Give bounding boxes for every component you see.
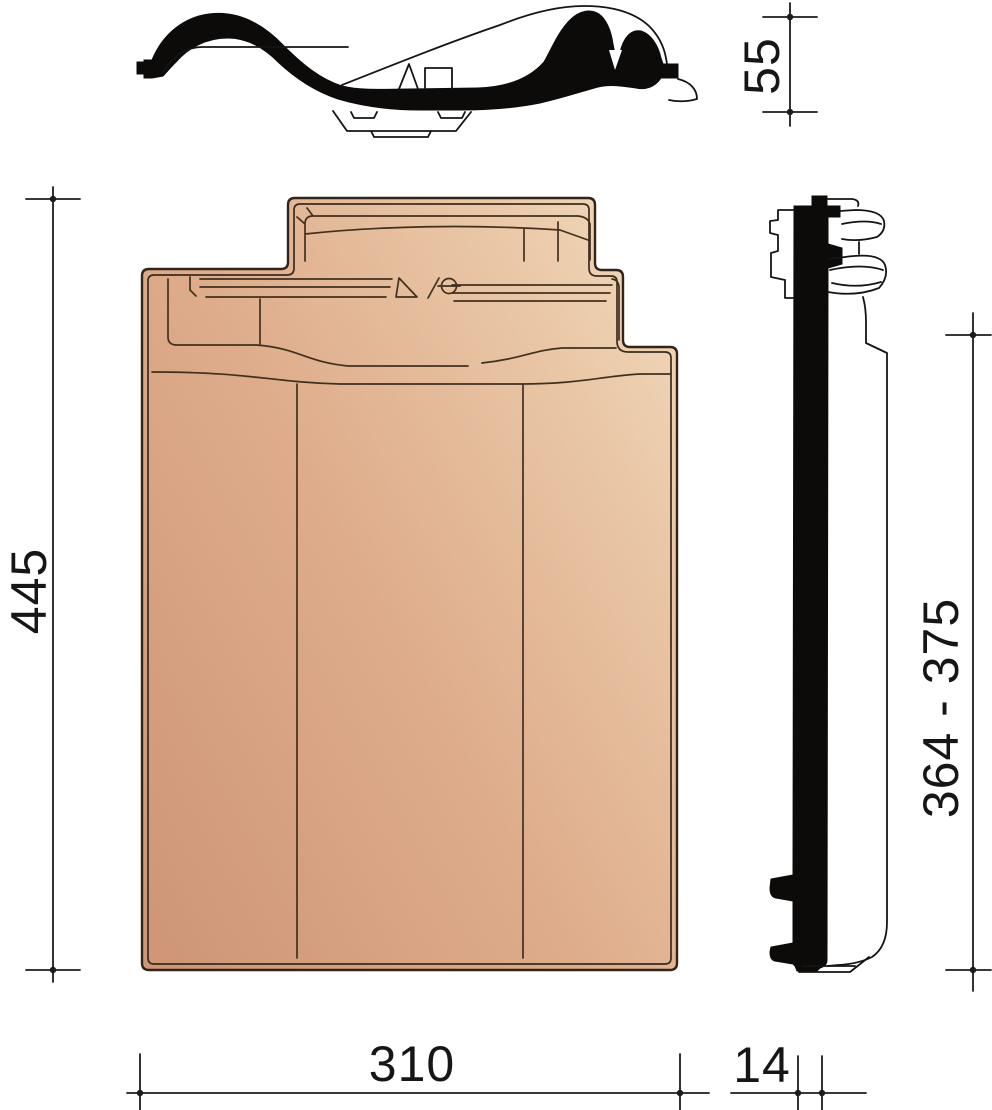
technical-drawing-canvas <box>0 0 992 1110</box>
top-profile-hump-chord-line <box>163 47 348 72</box>
top-profile-underside-outline <box>333 111 471 137</box>
dim-label-thickness: 14 <box>733 1036 791 1094</box>
side-head-left-steps-outline <box>770 210 793 298</box>
dim-label-tile-width: 310 <box>369 1035 455 1093</box>
dim-label-profile-height: 55 <box>733 37 791 95</box>
top-profile-right-end-outline <box>669 79 697 101</box>
front-view <box>142 198 677 970</box>
side-view <box>770 196 887 972</box>
side-top-nub-outline <box>827 199 858 206</box>
side-rib-upper-outline <box>840 210 884 240</box>
tile-technical-drawing: 55 445 364 - 375 310 14 <box>0 0 992 1110</box>
side-right-edge-outline <box>828 242 887 966</box>
top-profile-nib-outlines <box>399 64 452 89</box>
dim-label-hanging-length: 364 - 375 <box>912 598 970 818</box>
top-profile-view <box>137 6 697 137</box>
front-tile-body <box>142 198 677 970</box>
side-profile-black <box>770 196 842 971</box>
dim-label-tile-length: 445 <box>0 548 58 634</box>
top-profile-black-band <box>137 11 678 110</box>
